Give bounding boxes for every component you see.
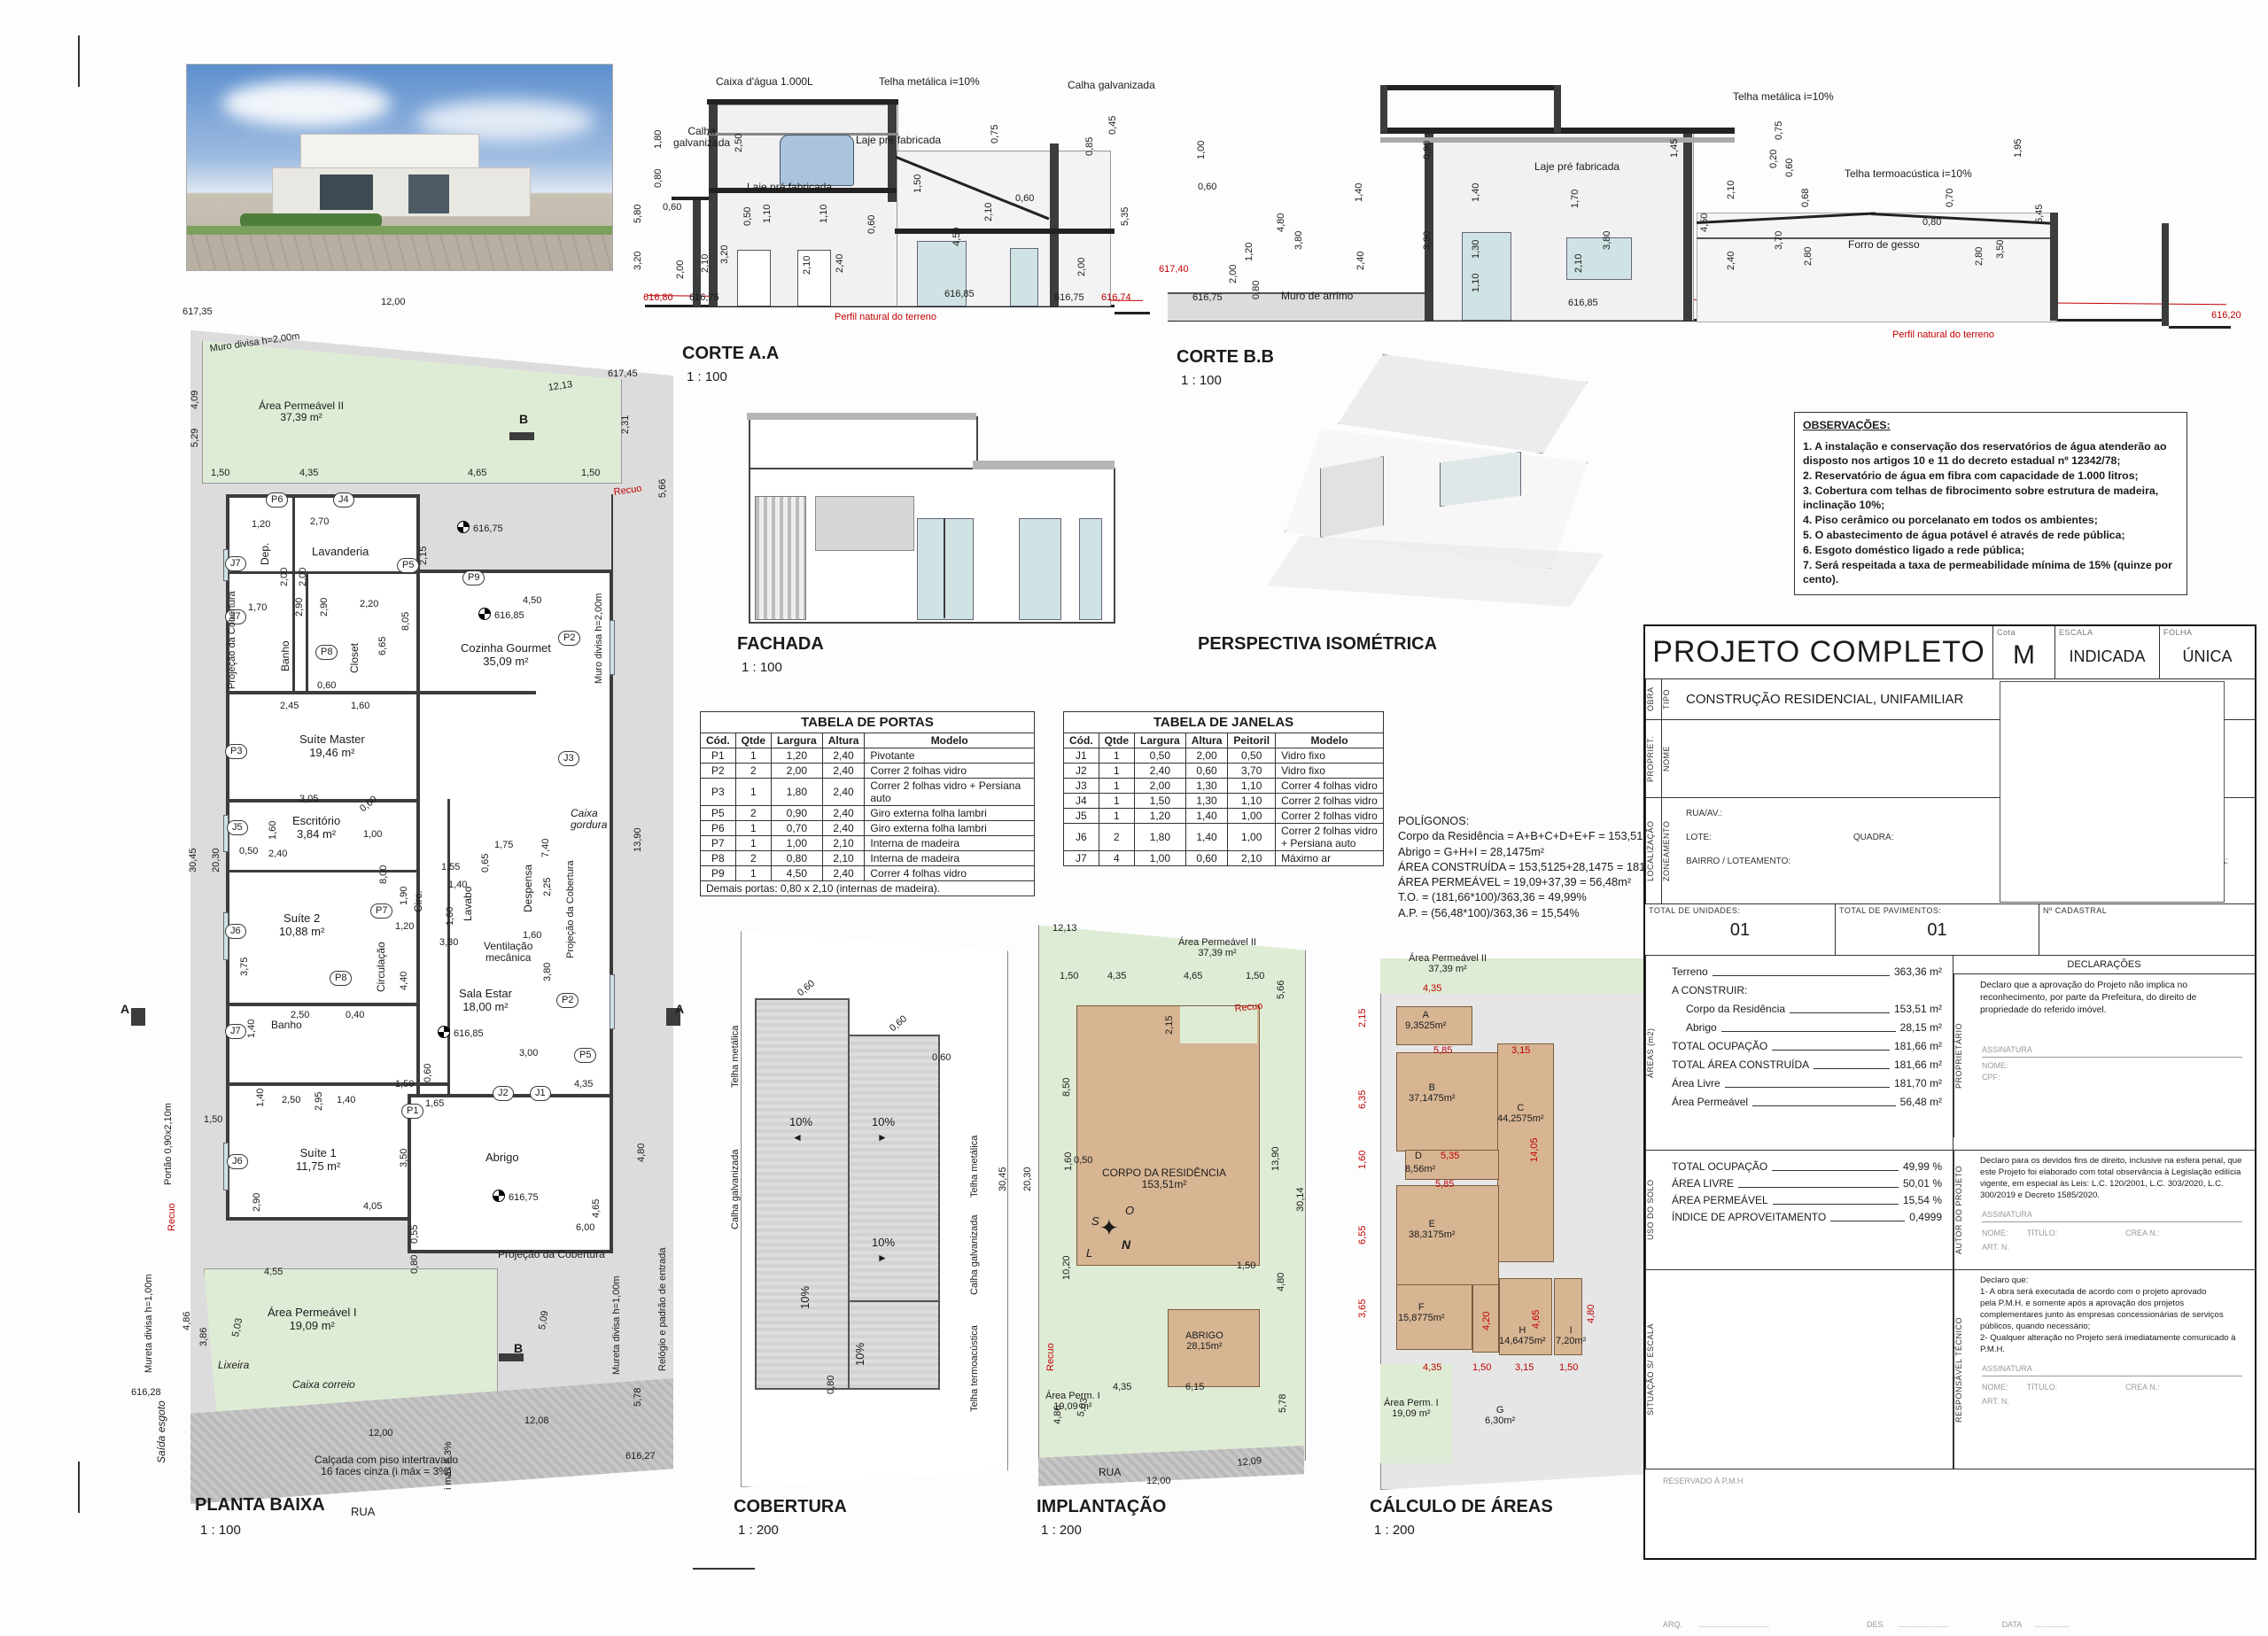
annotation-label: 1,40 — [1354, 183, 1364, 202]
annotation-label: 3,20 — [633, 252, 643, 270]
windows-table-row: J411,50 1,301,10Correr 2 folhas vidro — [1064, 794, 1384, 809]
annotation-label: 1 : 200 — [1041, 1524, 1082, 1539]
annotation-label: Mureta divisa h=1,00m — [144, 1274, 154, 1373]
windows-table-row: J741,00 0,602,10Máximo ar — [1064, 851, 1384, 866]
annotation-label: A — [120, 1003, 129, 1017]
area-row: TOTAL OCUPAÇÃO181,66 m² — [1672, 1040, 1942, 1052]
annotation-label: 616,20 — [2211, 310, 2241, 321]
doors-table-header: Modelo — [865, 733, 1035, 748]
responsavel-declaration: Declaro que: 1- A obra será executada de… — [1969, 1270, 2255, 1361]
photo-house-door — [408, 174, 449, 213]
annotation-label: 0,75 — [990, 125, 1000, 143]
obra-label: OBRA — [1645, 679, 1661, 719]
proprietario-declaration: Declaro que a aprovação do Projeto não i… — [1969, 974, 2255, 1022]
autor-label: AUTOR DO PROJETO — [1953, 1151, 1969, 1269]
windows-table-header: Cód. — [1064, 733, 1099, 748]
annotation-label: IMPLANTAÇÃO — [1037, 1497, 1166, 1516]
observation-item: 4. Piso cerâmico ou porcelanato em todos… — [1803, 514, 2179, 528]
area-row: TOTAL ÁREA CONSTRUÍDA181,66 m² — [1672, 1058, 1942, 1071]
doors-table: TABELA DE PORTAS Cód.QtdeLarguraAlturaMo… — [700, 711, 1035, 896]
crea-field: CREA N.: — [2125, 1229, 2160, 1237]
annotation-label: CORTE A.A — [682, 344, 779, 363]
sheet: { "observacoes":{ "title":"OBSERVAÇÕES:"… — [0, 0, 2268, 1575]
doors-table-row: P914,50 2,40Correr 4 folhas vidro — [701, 866, 1035, 881]
fold-mark-top — [78, 35, 80, 87]
area-row: Abrigo28,15 m² — [1672, 1021, 1942, 1034]
doors-table-footer: Demais portas: 0,80 x 2,10 (internas de … — [701, 881, 1035, 896]
rua-label: RUA/AV.: — [1686, 809, 1722, 818]
annotation-label: 2,10 — [1726, 181, 1736, 199]
windows-table: TABELA DE JANELAS Cód.QtdeLarguraAlturaP… — [1063, 711, 1384, 866]
proprietario-label: PROPRIETÁRIO — [1953, 974, 1969, 1137]
annotation-label: 3,80 — [1293, 231, 1304, 250]
des-dots: ....................... — [1898, 1620, 1949, 1629]
area-row: Área Permeável56,48 m² — [1672, 1096, 1942, 1108]
area-row: Terreno363,36 m² — [1672, 965, 1942, 978]
area-row: A CONSTRUIR: — [1672, 984, 1942, 996]
doors-table-row: P111,20 2,40Pivotante — [701, 748, 1035, 764]
annotation-label: Caixa d'água 1.000L — [716, 76, 813, 88]
unidades-label: TOTAL DE UNIDADES: — [1649, 906, 1740, 915]
annotation-label: 1 : 200 — [1374, 1524, 1415, 1539]
windows-table-header: Modelo — [1276, 733, 1384, 748]
fold-mark-bottom-center — [693, 1568, 755, 1570]
assinatura-label: ASSINATURA — [1982, 1045, 2242, 1054]
annotation-label: 3,65 — [1357, 1299, 1368, 1318]
cota-value: M — [1993, 640, 2054, 671]
lote-label: LOTE: — [1686, 833, 1712, 842]
annotation-label: Perfil natural do terreno — [835, 312, 936, 322]
doors-table-header: Altura — [822, 733, 865, 748]
annotation-label: 1 : 100 — [200, 1524, 241, 1539]
windows-table-row: J511,20 1,401,00Correr 2 folhas vidro — [1064, 809, 1384, 824]
annotation-label: Telha metálica i=10% — [879, 76, 980, 88]
annotation-label: 20,30 — [1022, 1167, 1033, 1191]
doors-table-row: P610,70 2,40Giro externa folha lambri — [701, 821, 1035, 836]
annotation-label: 5,35 — [1120, 207, 1130, 226]
annotation-label: 1 : 200 — [738, 1524, 779, 1539]
annotation-label: Telha termoacústica i=10% — [1845, 168, 1972, 180]
escala-value: INDICADA — [2055, 647, 2159, 666]
annotation-label: FACHADA — [737, 634, 824, 654]
annotation-label: COBERTURA — [734, 1497, 847, 1516]
titulo-field: TÍTULO: — [2027, 1383, 2058, 1392]
nome-field: NOME: — [1982, 1061, 2242, 1070]
annotation-label: Calha galvanizada — [1068, 80, 1155, 91]
doors-table-header: Largura — [772, 733, 823, 748]
annotation-label: 1,60 — [1357, 1151, 1368, 1169]
nome-field: NOME: — [1982, 1383, 2008, 1392]
arq-dots: ................................ — [1698, 1620, 1769, 1629]
folha-label: FOLHA — [2163, 628, 2193, 637]
windows-table-row: J621,80 1,401,00Correr 2 folhas vidro + … — [1064, 824, 1384, 851]
annotation-label: 1,20 — [1244, 243, 1254, 261]
annotation-label: 5,80 — [633, 205, 643, 223]
uso-solo-label: USO DO SOLO — [1645, 1151, 1661, 1269]
doors-table-header: Qtde — [735, 733, 771, 748]
annotation-label: 6,55 — [1357, 1226, 1368, 1244]
arq-label: ARQ. — [1663, 1620, 1682, 1629]
windows-table-header: Qtde — [1099, 733, 1134, 748]
obra-value: CONSTRUÇÃO RESIDENCIAL, UNIFAMILIAR — [1686, 692, 1963, 707]
uso-solo-row: ÁREA LIVRE50,01 % — [1672, 1177, 1942, 1190]
annotation-label: 1 : 100 — [742, 661, 782, 676]
tipo-label: TIPO — [1661, 679, 1677, 719]
annotation-label: Calha galvanizada — [730, 1149, 741, 1229]
windows-table-row: J212,40 0,603,70Vidro fixo — [1064, 764, 1384, 779]
doors-table-row: P820,80 2,10Interna de madeira — [701, 851, 1035, 866]
photo-driveway — [187, 235, 612, 270]
annotation-label: 12,00 — [381, 297, 406, 307]
declaracoes-header: DECLARAÇÕES — [1953, 956, 2255, 974]
folha-value: ÚNICA — [2160, 647, 2255, 666]
cpf-field: CPF: — [1982, 1073, 2242, 1082]
doors-table-row: P520,90 2,40Giro externa folha lambri — [701, 806, 1035, 821]
assinatura-label: ASSINATURA — [1982, 1364, 2242, 1373]
unidades-value: 01 — [1645, 920, 1835, 941]
uso-solo-list: TOTAL OCUPAÇÃO49,99 %ÁREA LIVRE50,01 %ÁR… — [1661, 1151, 1953, 1269]
uso-solo-row: ÍNDICE DE APROVEITAMENTO0,4999 — [1672, 1211, 1942, 1223]
observations-list: 1. A instalação e conservação dos reserv… — [1803, 440, 2179, 587]
annotation-label: PERSPECTIVA ISOMÉTRICA — [1198, 634, 1437, 654]
data-label: DATA — [2002, 1620, 2023, 1629]
folha-cell: FOLHA ÚNICA — [2159, 626, 2255, 678]
annotation-label: 0,45 — [1107, 116, 1118, 135]
annotation-label: 4,80 — [1276, 213, 1286, 232]
observations-title: OBSERVAÇÕES: — [1803, 419, 2179, 433]
annotation-label: 0,80 — [653, 169, 664, 188]
nome-label: NOME — [1661, 720, 1677, 797]
annotation-label: Telha metálica i=10% — [1733, 91, 1834, 103]
uso-solo-row: TOTAL OCUPAÇÃO49,99 % — [1672, 1160, 1942, 1173]
area-row: Área Livre181,70 m² — [1672, 1077, 1942, 1089]
annotation-label: 2,00 — [675, 260, 686, 279]
situacao-area — [1661, 1270, 1953, 1469]
situacao-label: SITUAÇÃO S/ ESCALA — [1645, 1270, 1661, 1469]
photo-house-body — [272, 167, 531, 217]
assinatura-label: ASSINATURA — [1982, 1210, 2242, 1219]
observations-box: OBSERVAÇÕES: 1. A instalação e conservaç… — [1794, 412, 2187, 595]
doors-table-title: TABELA DE PORTAS — [701, 712, 1035, 733]
annotation-label: 1 : 100 — [687, 370, 727, 385]
photo-house-window — [320, 174, 373, 210]
des-label: DES. — [1867, 1620, 1885, 1629]
pavimentos-value: 01 — [1836, 920, 2039, 941]
cloud — [222, 81, 391, 127]
doors-table-header: Cód. — [701, 733, 736, 748]
annotation-label: 617,40 — [1159, 264, 1189, 275]
title-block-photo-box — [2000, 681, 2225, 903]
quadra-label: QUADRA: — [1853, 833, 1894, 842]
observation-item: 6. Esgoto doméstico ligado a rede públic… — [1803, 544, 2179, 558]
propriet-label: PROPRIET. — [1645, 720, 1661, 797]
annotation-label: Recuo — [167, 1203, 177, 1231]
annotation-label: 6,35 — [1357, 1090, 1368, 1109]
localizacao-label: LOCALIZAÇÃO — [1645, 798, 1661, 903]
nome-field: NOME: — [1982, 1229, 2008, 1237]
observation-item: 3. Cobertura com telhas de fibrocimento … — [1803, 485, 2179, 513]
doors-table-row: P222,00 2,40Correr 2 folhas vidro — [701, 764, 1035, 779]
data-dots: ................ — [2034, 1620, 2070, 1629]
annotation-label: RUA — [351, 1506, 375, 1519]
windows-table-title: TABELA DE JANELAS — [1064, 712, 1384, 733]
windows-table-row: J110,50 2,000,50Vidro fixo — [1064, 748, 1384, 764]
annotation-label: 616,28 — [131, 1387, 161, 1398]
photo-house-upper — [300, 134, 479, 171]
bairro-label: BAIRRO / LOTEAMENTO: — [1686, 857, 1790, 866]
sheet-title: PROJETO COMPLETO — [1652, 635, 1985, 670]
windows-table-header: Altura — [1185, 733, 1228, 748]
annotation-label: 0,20 — [1768, 150, 1779, 168]
doors-table-row: P711,00 2,10Interna de madeira — [701, 836, 1035, 851]
annotation-label: 2,15 — [1357, 1009, 1368, 1027]
observation-item: 2. Reservatório de água em fibra com cap… — [1803, 469, 2179, 484]
annotation-label: 617,35 — [183, 306, 213, 317]
annotation-label: Saída esgoto — [156, 1400, 167, 1463]
crea-field: CREA N.: — [2125, 1383, 2160, 1392]
annotation-label: 1,80 — [653, 130, 664, 149]
annotation-label: 2,00 — [1228, 265, 1239, 283]
annotation-label: 0,60 — [1784, 159, 1795, 177]
doors-table-row: P311,80 2,40Correr 2 folhas vidro + Pers… — [701, 779, 1035, 806]
annotation-label: CÁLCULO DE ÁREAS — [1370, 1497, 1553, 1516]
autor-declaration: Declaro para os devidos fins de direito,… — [1969, 1151, 2255, 1207]
escala-cell: ESCALA INDICADA — [2054, 626, 2159, 678]
areas-list: Terreno363,36 m²A CONSTRUIR:Corpo da Res… — [1661, 956, 1953, 1150]
art-field: ART. N. — [1982, 1397, 2242, 1406]
areas-label: ÁREAS (m2) — [1645, 956, 1661, 1150]
photo-lawn — [187, 226, 612, 235]
responsavel-label: RESPONSÁVEL TÉCNICO — [1953, 1270, 1969, 1469]
annotation-label: 0,75 — [1774, 121, 1784, 140]
title-block: PROJETO COMPLETO Cota M ESCALA INDICADA … — [1643, 624, 2256, 1560]
titulo-field: TÍTULO: — [2027, 1229, 2058, 1237]
annotation-label: 0,68 — [1800, 189, 1811, 207]
annotation-label: 1,00 — [1196, 141, 1207, 159]
cota-label: Cota — [1997, 628, 2016, 637]
annotation-label: 1 : 100 — [1181, 374, 1222, 389]
annotation-label: 1,95 — [2013, 139, 2023, 158]
art-field: ART. N. — [1982, 1243, 2242, 1252]
observation-item: 7. Será respeitada a taxa de permeabilid… — [1803, 559, 2179, 587]
fold-mark-bottom — [78, 1462, 80, 1513]
annotation-label: Telha metálica — [730, 1026, 741, 1088]
pavimentos-label: TOTAL DE PAVIMENTOS: — [1839, 906, 1941, 915]
area-row: Corpo da Residência153,51 m² — [1672, 1003, 1942, 1015]
annotation-label: 2,40 — [1355, 252, 1366, 270]
observation-item: 5. O abastecimento de água potável é atr… — [1803, 529, 2179, 543]
windows-table-row: J312,00 1,301,10Correr 4 folhas vidro — [1064, 779, 1384, 794]
annotation-label: 0,70 — [1945, 189, 1955, 207]
zoneamento-label: ZONEAMENTO — [1661, 798, 1677, 903]
annotation-label: Perfil natural do terreno — [1892, 330, 1994, 340]
annotation-label: Portão 0,90x2,10m — [163, 1103, 174, 1185]
render-photo — [186, 64, 613, 271]
annotation-label: 0,60 — [1198, 182, 1216, 192]
reservado-label: RESERVADO À P.M.H — [1663, 1477, 2255, 1485]
annotation-label: 616,80 — [643, 292, 673, 303]
observation-item: 1. A instalação e conservação dos reserv… — [1803, 440, 2179, 469]
cadastral-label: Nº CADASTRAL — [2043, 906, 2107, 915]
sheet-title-cell: PROJETO COMPLETO — [1645, 626, 1992, 678]
windows-table-header: Largura — [1135, 733, 1186, 748]
windows-table-header: Peitoril — [1228, 733, 1276, 748]
escala-label: ESCALA — [2059, 628, 2093, 637]
annotation-label: 0,60 — [663, 202, 681, 213]
cota-cell: Cota M — [1992, 626, 2054, 678]
uso-solo-row: ÁREA PERMEÁVEL15,54 % — [1672, 1194, 1942, 1206]
